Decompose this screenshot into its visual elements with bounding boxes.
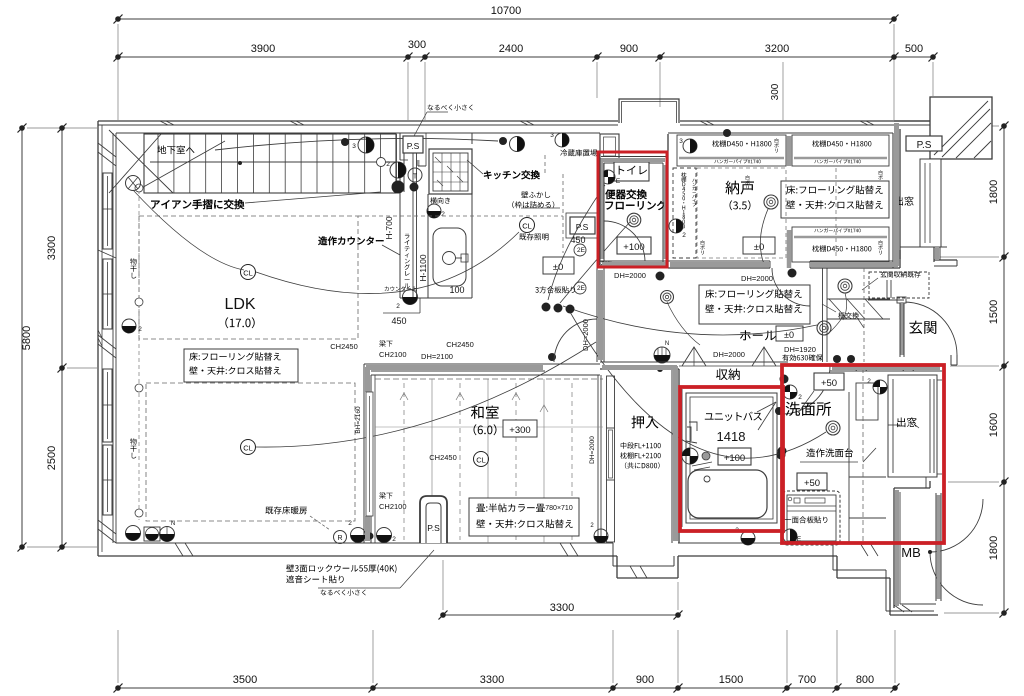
svg-text:CH2450: CH2450 — [446, 340, 474, 349]
svg-text:CH2450: CH2450 — [330, 342, 358, 351]
svg-text:5800: 5800 — [21, 326, 33, 350]
svg-text:MB: MB — [901, 545, 921, 560]
svg-text:3: 3 — [550, 132, 554, 139]
svg-text:1800: 1800 — [988, 536, 1000, 560]
svg-text:3: 3 — [679, 138, 683, 145]
svg-text:2: 2 — [386, 161, 390, 168]
svg-text:+100: +100 — [623, 242, 644, 253]
svg-text:1500: 1500 — [719, 674, 743, 686]
svg-text:CL: CL — [476, 456, 486, 465]
svg-text:3: 3 — [352, 143, 356, 150]
svg-text:800: 800 — [856, 674, 874, 686]
svg-text:N: N — [171, 521, 175, 527]
svg-text:±0: ±0 — [784, 330, 794, 340]
svg-text:E: E — [616, 178, 621, 185]
svg-text:CL: CL — [243, 269, 253, 278]
svg-text:900: 900 — [620, 43, 638, 55]
svg-text:R: R — [337, 535, 342, 542]
svg-text:+50: +50 — [821, 378, 837, 389]
svg-text:900: 900 — [636, 674, 654, 686]
svg-text:3300: 3300 — [46, 236, 58, 260]
svg-text:±0: ±0 — [754, 242, 765, 253]
svg-text:CH2100: CH2100 — [379, 502, 407, 511]
svg-text:BH=2160: BH=2160 — [355, 406, 362, 434]
svg-text:CH2450: CH2450 — [429, 453, 457, 462]
svg-text:N: N — [665, 341, 669, 347]
svg-text:2: 2 — [138, 326, 142, 333]
svg-text:2: 2 — [392, 536, 396, 543]
svg-text:2: 2 — [798, 394, 802, 401]
svg-text:300: 300 — [770, 83, 781, 100]
svg-text:DH=2000: DH=2000 — [581, 319, 590, 351]
svg-text:P.S: P.S — [576, 222, 589, 232]
svg-text:±0: ±0 — [553, 262, 564, 273]
svg-text:450: 450 — [570, 235, 585, 245]
svg-text:2: 2 — [396, 303, 400, 310]
svg-text:300: 300 — [408, 39, 426, 51]
svg-text:H-700: H-700 — [384, 216, 394, 239]
svg-text:P.S: P.S — [427, 523, 440, 533]
svg-text:2E: 2E — [577, 247, 586, 254]
svg-text:+50: +50 — [804, 478, 820, 489]
svg-text:3900: 3900 — [251, 43, 275, 55]
svg-text:P.S: P.S — [407, 141, 420, 151]
svg-text:DH=1920: DH=1920 — [784, 345, 816, 354]
svg-text:T: T — [413, 174, 418, 181]
svg-text:CH2100: CH2100 — [379, 350, 407, 359]
svg-text:100: 100 — [449, 285, 464, 295]
svg-text:2E: 2E — [577, 285, 586, 292]
svg-text:H-1100: H-1100 — [418, 254, 428, 282]
svg-text:DH=2000: DH=2000 — [713, 350, 745, 359]
svg-text:2: 2 — [867, 378, 871, 385]
svg-text:1600: 1600 — [988, 413, 1000, 437]
svg-text:3200: 3200 — [765, 43, 789, 55]
svg-text:10700: 10700 — [491, 5, 522, 17]
svg-text:3300: 3300 — [480, 674, 504, 686]
svg-text:2: 2 — [441, 211, 445, 218]
svg-text:DH=2000: DH=2000 — [741, 274, 773, 283]
svg-text:CL: CL — [522, 222, 532, 231]
svg-text:3500: 3500 — [233, 674, 257, 686]
svg-text:1500: 1500 — [988, 300, 1000, 324]
svg-text:+100: +100 — [724, 453, 745, 464]
svg-text:1418: 1418 — [717, 429, 746, 444]
svg-text:DH=2000: DH=2000 — [614, 271, 646, 280]
svg-text:780×710: 780×710 — [545, 505, 573, 512]
svg-text:2400: 2400 — [499, 43, 523, 55]
svg-text:1800: 1800 — [988, 180, 1000, 204]
svg-text:2: 2 — [348, 520, 352, 527]
svg-text:CL: CL — [243, 444, 253, 453]
svg-text:LDK: LDK — [224, 296, 255, 313]
svg-text:450: 450 — [391, 316, 406, 326]
svg-text:500: 500 — [905, 43, 923, 55]
svg-text:2: 2 — [682, 232, 686, 239]
svg-text:P.S: P.S — [917, 140, 932, 151]
svg-text:2500: 2500 — [46, 446, 58, 470]
svg-text:+300: +300 — [509, 425, 530, 436]
svg-text:3300: 3300 — [550, 602, 574, 614]
svg-text:DH=2000: DH=2000 — [589, 436, 596, 464]
svg-text:DH=2100: DH=2100 — [421, 352, 453, 361]
svg-text:700: 700 — [798, 674, 816, 686]
